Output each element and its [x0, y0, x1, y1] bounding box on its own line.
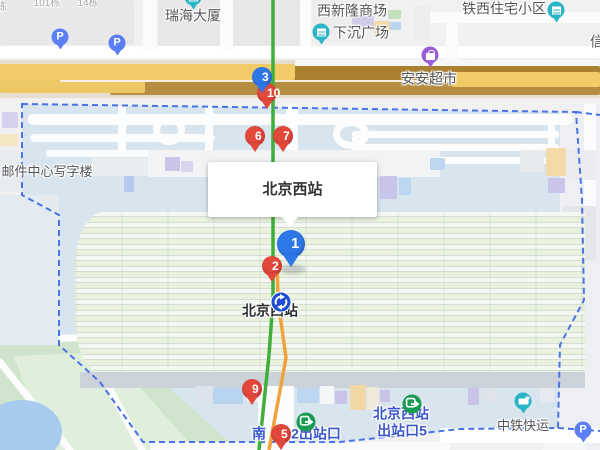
building-icon [189, 0, 198, 1]
exit-label: 出站口5 [377, 424, 427, 439]
numbered-marker-3[interactable]: 3 [252, 67, 272, 87]
building-icon[interactable] [313, 24, 330, 41]
station-info-popup[interactable]: 北京西站 [208, 162, 377, 217]
parking-marker[interactable]: P [575, 422, 592, 439]
exit-label: 南 [252, 427, 266, 442]
numbered-marker-6[interactable]: 6 [245, 126, 265, 146]
building-icon[interactable] [548, 2, 565, 19]
shopping-icon[interactable] [422, 47, 439, 64]
shopping-icon [426, 53, 435, 60]
place-label: 101栋 [34, 0, 61, 9]
marker-number: 2 [272, 256, 279, 276]
parking-marker[interactable]: P [52, 29, 69, 46]
place-label: 铁西住宅小区 [462, 2, 546, 17]
marker-number: 5 [281, 424, 288, 444]
place-label: 西新隆商场 [317, 4, 387, 19]
place-label: 中铁快运 [497, 419, 549, 433]
marker-number: 7 [283, 126, 290, 146]
map-overlay-lines [0, 0, 600, 450]
numbered-marker-7[interactable]: 7 [273, 126, 293, 146]
truck-icon [518, 398, 528, 404]
truck-icon[interactable] [515, 393, 532, 410]
parking-marker[interactable]: P [109, 35, 126, 52]
place-label: 栋 [0, 3, 7, 14]
numbered-marker-5[interactable]: 5 [271, 424, 291, 444]
place-label: 邮件中心写字楼 [1, 165, 92, 179]
numbered-marker-1[interactable]: 1 [277, 230, 305, 258]
place-label: 瑞海大厦 [165, 9, 221, 24]
marker-number: 1 [291, 230, 299, 258]
marker-number: 3 [262, 67, 269, 87]
place-label: 安安超市 [401, 72, 457, 87]
map-canvas[interactable]: 101栋14栋栋瑞海大厦西新隆商场下沉广场铁西住宅小区信安安超市邮件中心写字楼北… [0, 0, 600, 450]
building-icon [552, 6, 561, 14]
place-label: 14栋 [77, 0, 98, 9]
station-info-title: 北京西站 [208, 162, 377, 217]
place-label: 信 [590, 35, 600, 50]
marker-number: 10 [267, 83, 280, 103]
place-label: 下沉广场 [333, 26, 389, 41]
numbered-marker-9[interactable]: 9 [242, 379, 262, 399]
marker-number: 6 [255, 126, 262, 146]
building-icon [317, 28, 326, 36]
marker-number: 9 [252, 379, 259, 399]
numbered-marker-2[interactable]: 2 [262, 256, 282, 276]
